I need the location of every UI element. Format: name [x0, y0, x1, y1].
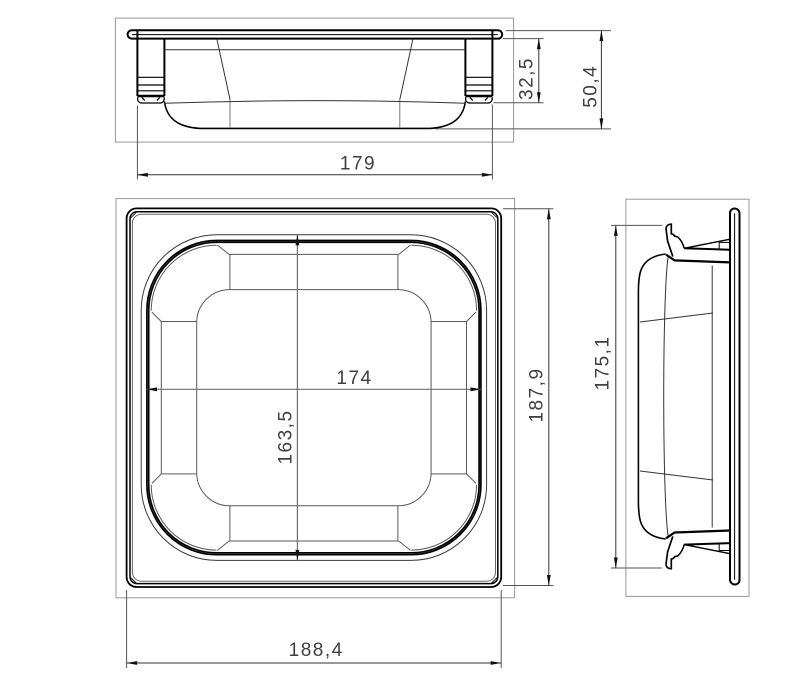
svg-text:188,4: 188,4 — [289, 640, 344, 661]
svg-text:175,1: 175,1 — [592, 335, 613, 390]
svg-text:50,4: 50,4 — [580, 65, 601, 108]
svg-text:187,9: 187,9 — [527, 367, 548, 422]
svg-text:179: 179 — [340, 154, 376, 175]
svg-text:32,5: 32,5 — [517, 57, 538, 100]
svg-text:163,5: 163,5 — [276, 409, 297, 464]
svg-text:174: 174 — [336, 368, 372, 389]
